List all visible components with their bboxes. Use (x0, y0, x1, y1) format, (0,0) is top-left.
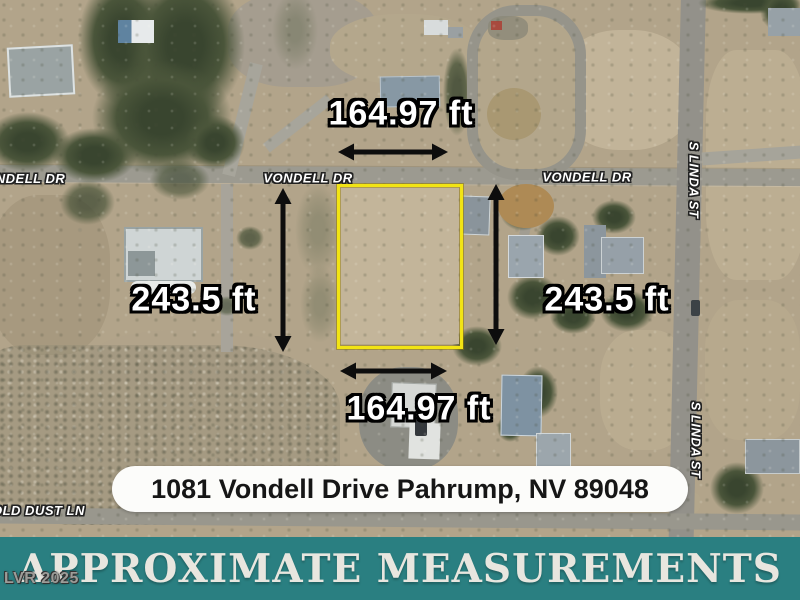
dirt-patch (487, 88, 541, 140)
measurement-label-left: 243.5 ft (131, 281, 256, 320)
arrow-top-width (338, 144, 448, 161)
building-roof (460, 196, 490, 236)
address-banner: 1081 Vondell Drive Pahrump, NV 89048 (112, 466, 688, 512)
building-roof (536, 433, 571, 468)
measurement-label-bottom: 164.97 ft (346, 390, 491, 429)
footer-banner: APPROXIMATE MEASUREMENTS (0, 537, 800, 600)
car (691, 300, 700, 316)
bush (236, 226, 264, 250)
vegetation-patch (300, 265, 340, 343)
street-label-s-linda-lower: S LINDA ST (689, 402, 704, 479)
building-roof (118, 20, 154, 43)
street-label-old-dust: OLD DUST LN (0, 503, 85, 518)
dirt-mound (498, 184, 554, 228)
terrain-patch (706, 50, 800, 280)
building-roof (424, 20, 448, 35)
street-label-vondell-right: VONDELL DR (542, 170, 631, 185)
building-roof (500, 375, 542, 437)
building-roof (745, 439, 800, 474)
measurement-label-right: 243.5 ft (544, 281, 669, 320)
watermark: LVR 2025 (4, 570, 79, 588)
building-roof (128, 251, 155, 276)
listing-image: VONDELL DR VONDELL DR VONDELL DR S LINDA… (0, 0, 800, 600)
street-label-vondell-left: VONDELL DR (0, 171, 65, 186)
building-roof (448, 27, 463, 38)
vegetation-patch (295, 182, 341, 277)
measurement-label-top: 164.97 ft (328, 95, 473, 134)
driveway (263, 95, 333, 153)
address-text: 1081 Vondell Drive Pahrump, NV 89048 (151, 474, 649, 505)
building-roof (7, 44, 76, 97)
satellite-map: VONDELL DR VONDELL DR VONDELL DR S LINDA… (0, 0, 800, 600)
terrain-patch (705, 300, 800, 440)
bush (150, 160, 210, 200)
driveway (221, 184, 233, 352)
street-label-s-linda-upper: S LINDA ST (687, 142, 702, 219)
lot-boundary (337, 184, 463, 349)
street-label-vondell-center: VONDELL DR (263, 171, 352, 186)
bush (60, 180, 115, 225)
building-roof (491, 21, 502, 30)
footer-title: APPROXIMATE MEASUREMENTS (18, 546, 782, 592)
arrow-left-height (275, 188, 292, 352)
building-roof (601, 237, 644, 274)
building-roof (768, 8, 800, 36)
building-roof (508, 235, 544, 278)
